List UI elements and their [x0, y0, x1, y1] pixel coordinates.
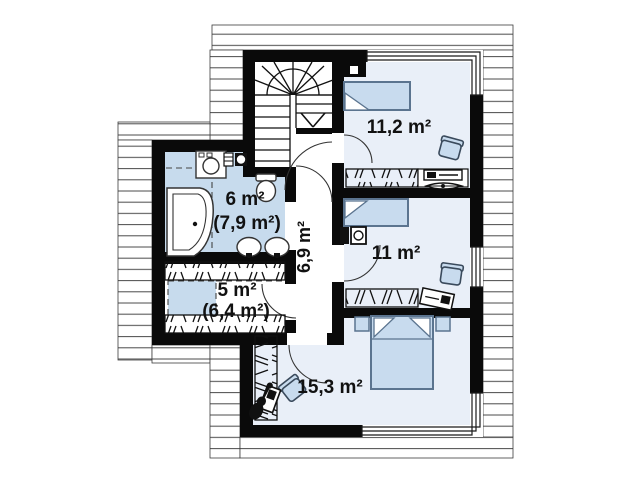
room-label-wardrobe: 5 m² — [217, 280, 256, 301]
chair-icon — [439, 263, 464, 286]
room-label-bedroom-middle: 11 m² — [372, 243, 421, 264]
single-bed-icon — [344, 82, 410, 110]
roof-band-top — [212, 25, 513, 50]
wall-hall-rooms-1 — [332, 50, 344, 133]
stair-center-gap — [291, 95, 296, 167]
roof-band-bottom — [240, 437, 513, 458]
nightstand-icon — [340, 227, 366, 244]
roof-band-right — [483, 50, 513, 437]
wall-wardrobe-bottom-2 — [327, 333, 344, 345]
wall-left-lower — [240, 345, 253, 437]
roof-band-bath-top — [118, 122, 210, 140]
washing-machine-icon — [196, 151, 226, 178]
room-label-hallway: 6,9 m² — [294, 221, 314, 273]
wall-bath-right-1 — [285, 167, 296, 202]
wall-bottom — [240, 425, 362, 437]
closet-rail-top — [165, 262, 285, 280]
nightstand-icon — [355, 317, 369, 331]
roof-band-step — [152, 345, 210, 363]
closet-rail-bedroom-middle — [346, 289, 418, 307]
nightstand-icon — [436, 317, 450, 331]
closet-rail-bedroom-top — [346, 169, 418, 187]
vent-icon — [224, 153, 247, 166]
room-label-wardrobe-sub: (6,4 m²) — [202, 301, 270, 322]
chimney-icon — [344, 62, 366, 77]
room-label-bedroom-top: 11,2 m² — [367, 117, 431, 138]
room-label-bathroom: 6 m² — [225, 189, 264, 210]
room-label-bedroom-bottom: 15,3 m² — [297, 377, 362, 398]
roof-band-notch — [210, 345, 240, 458]
computer-desk-icon — [424, 170, 462, 189]
wall-left — [152, 140, 165, 345]
single-bed-icon — [344, 199, 408, 226]
roof-band-left — [118, 140, 152, 360]
wall-wardrobe-right-2 — [285, 320, 296, 333]
double-bed-icon — [371, 316, 433, 389]
roof-band-stair-left — [210, 50, 243, 140]
wall-bath-top — [152, 140, 243, 152]
wall-top — [243, 50, 367, 62]
wall-bed1-bed2 — [344, 188, 470, 198]
wall-stair-stub — [296, 128, 332, 134]
floor-plan: 11,2 m² 11 m² 15,3 m² 6 m² (7,9 m²) 5 m²… — [0, 0, 640, 489]
wall-right-1 — [470, 95, 483, 247]
wall-right-2 — [470, 287, 483, 393]
room-label-bathroom-sub: (7,9 m²) — [213, 213, 281, 234]
floor-plan-page: 11,2 m² 11 m² 15,3 m² 6 m² (7,9 m²) 5 m²… — [0, 0, 640, 489]
